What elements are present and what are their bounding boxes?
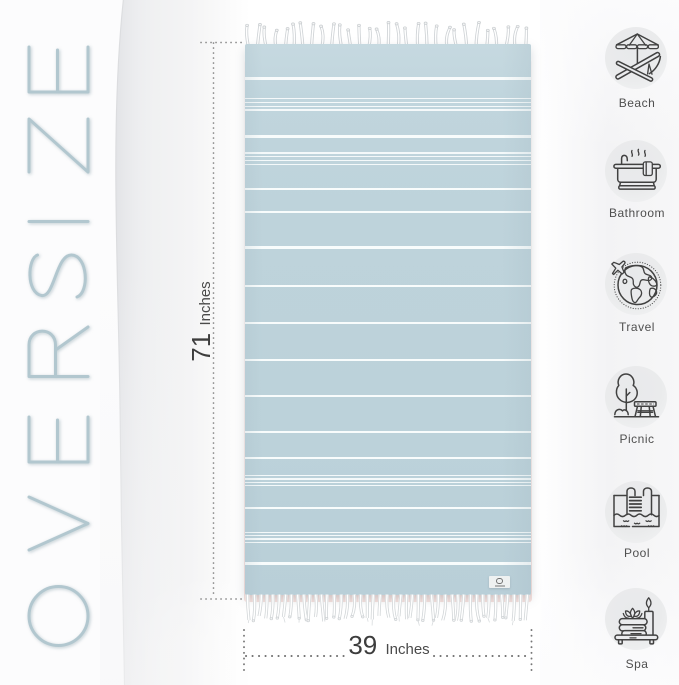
svg-text:71 Inches: 71 Inches	[186, 281, 216, 361]
